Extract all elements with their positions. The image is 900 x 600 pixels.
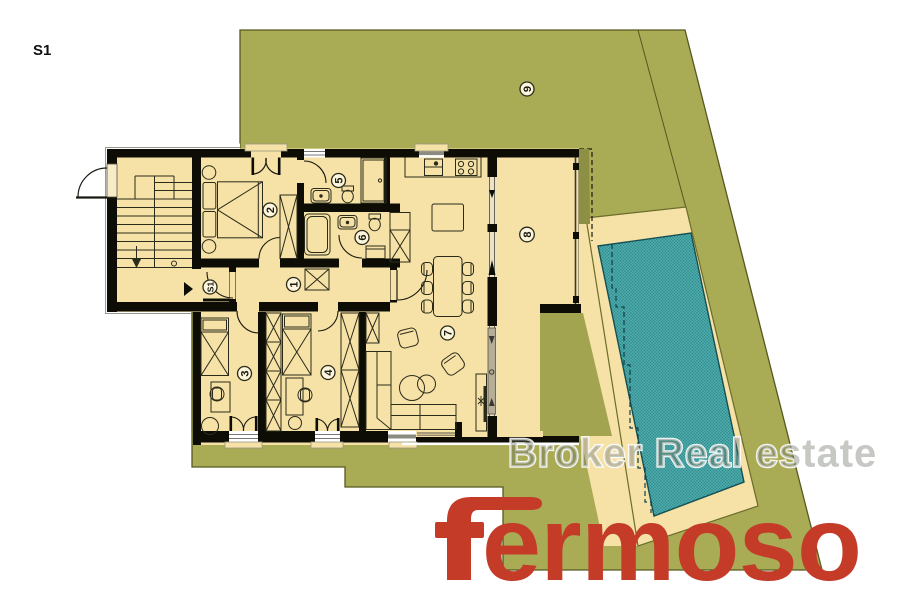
svg-text:9: 9 [522, 86, 534, 92]
svg-text:ermoso: ermoso [482, 485, 861, 600]
svg-text:7: 7 [443, 330, 455, 336]
svg-text:S1: S1 [33, 42, 51, 59]
svg-text:Broker Real estate: Broker Real estate [508, 432, 877, 476]
svg-text:6: 6 [357, 234, 369, 240]
svg-text:S1: S1 [206, 282, 216, 293]
svg-text:5: 5 [334, 177, 346, 183]
svg-text:3: 3 [240, 370, 252, 376]
svg-text:2: 2 [265, 207, 277, 213]
svg-text:8: 8 [522, 231, 534, 237]
svg-text:1: 1 [289, 281, 301, 287]
svg-text:4: 4 [323, 369, 335, 376]
